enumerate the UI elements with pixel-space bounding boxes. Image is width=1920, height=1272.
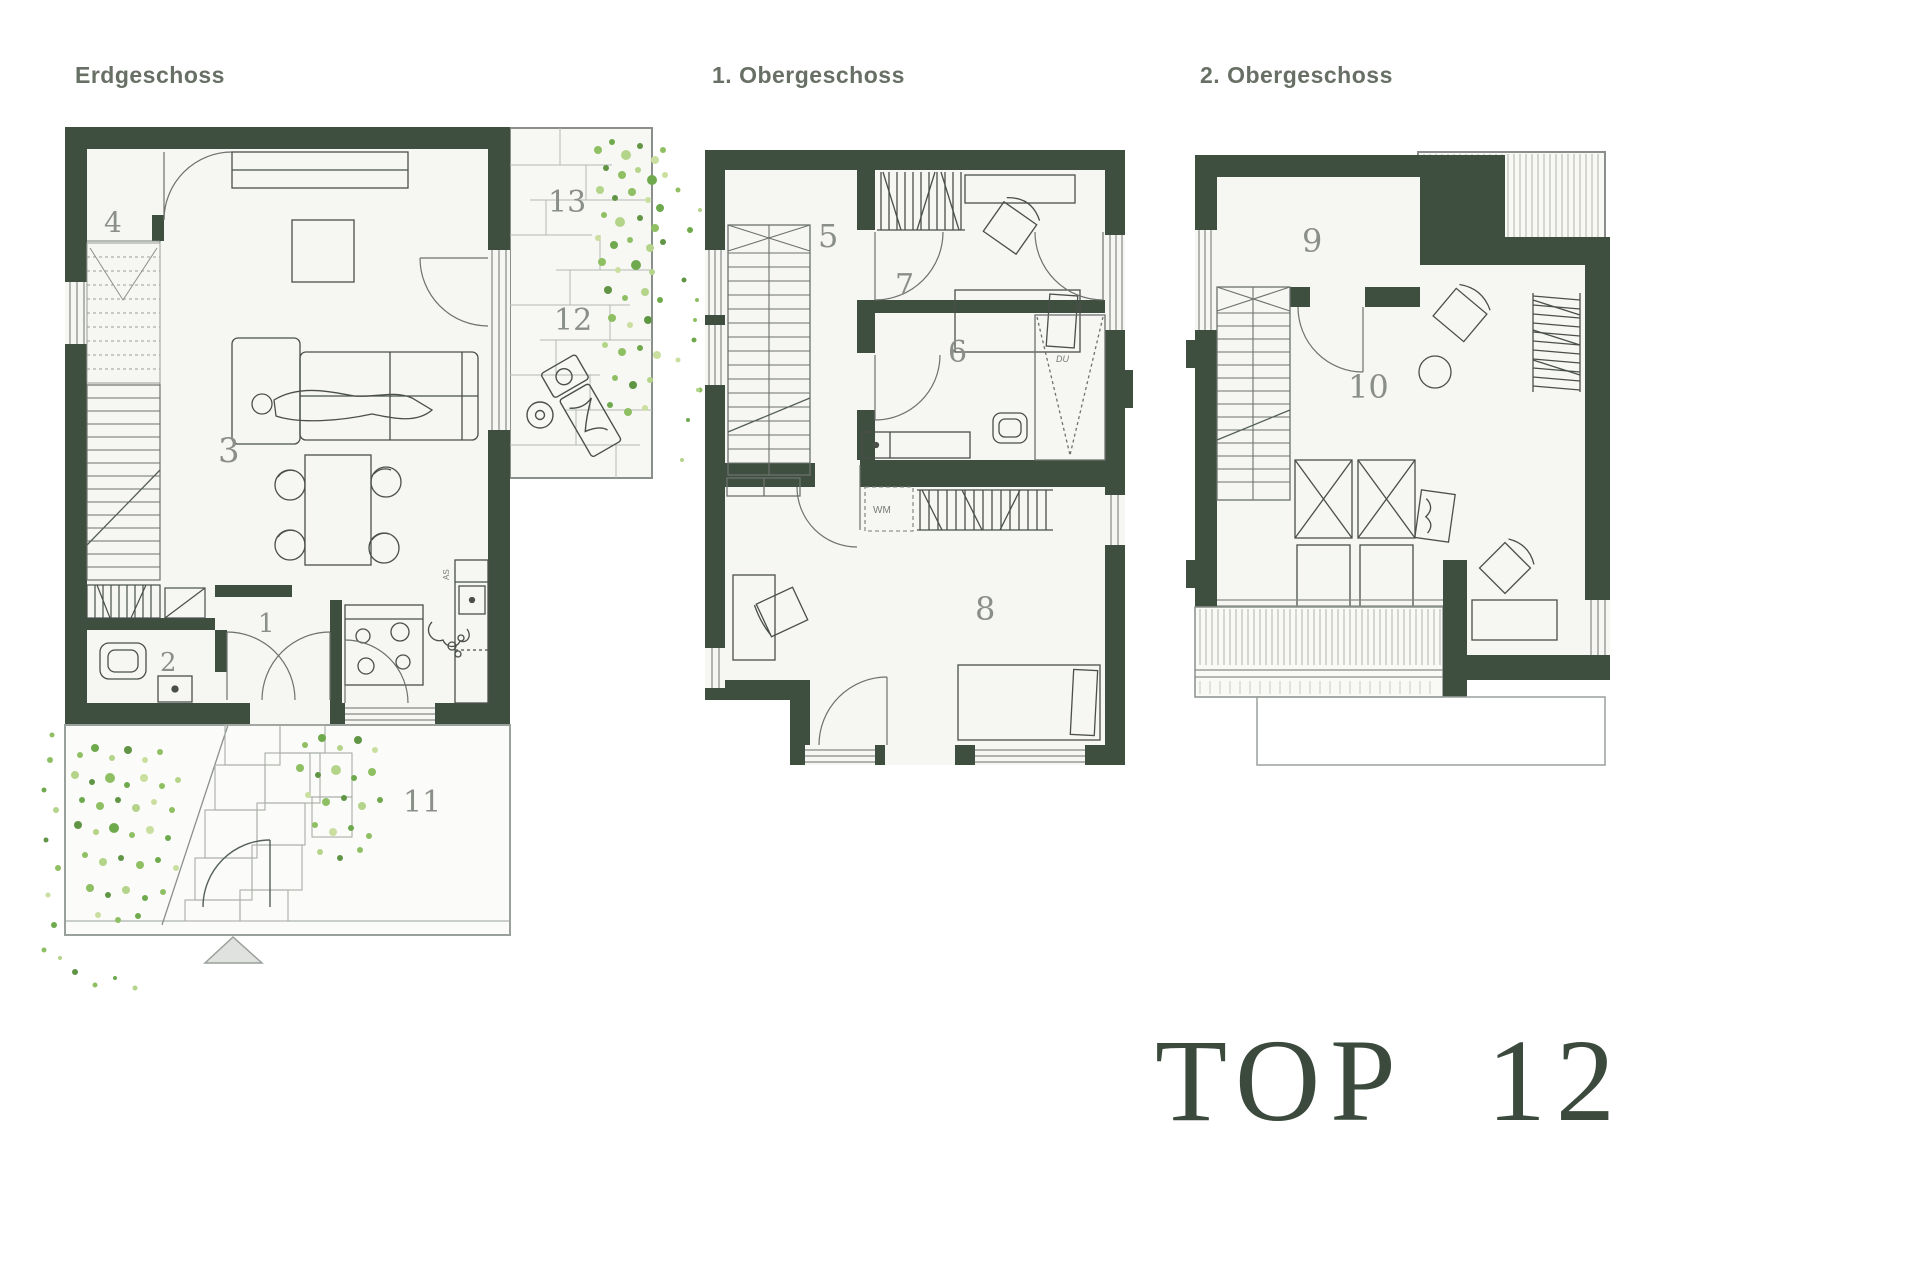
plan-title-erdgeschoss: Erdgeschoss — [75, 62, 225, 89]
room-number-6: 6 — [948, 335, 967, 370]
room-number-1: 1 — [258, 609, 275, 639]
plan-title-obergeschoss-1: 1. Obergeschoss — [712, 62, 905, 89]
shower-du-label: DU — [1056, 354, 1069, 364]
room-number-11: 11 — [403, 785, 441, 820]
floorplan-obergeschoss-2: 9 — [1150, 120, 1670, 820]
room-number-2: 2 — [160, 648, 177, 678]
kitchen-as-label: AS — [442, 569, 451, 580]
room-number-5: 5 — [818, 217, 838, 255]
floorplan-obergeschoss-1: 5 — [690, 120, 1150, 820]
room-number-8: 8 — [975, 590, 995, 628]
unit-label: TOP 12 — [1155, 1022, 1625, 1140]
vegetation-hint — [692, 298, 701, 392]
balcony-pillar — [1443, 560, 1467, 697]
washing-machine-label: WM — [873, 505, 891, 516]
floorplan-sheet: Erdgeschoss 1. Obergeschoss 2. Obergesch… — [0, 0, 1920, 1272]
room-number-13: 13 — [548, 185, 586, 220]
room-number-9: 9 — [1302, 222, 1322, 260]
plan-title-obergeschoss-2: 2. Obergeschoss — [1200, 62, 1393, 89]
garden: 11 — [65, 725, 510, 963]
room-number-12: 12 — [554, 303, 592, 338]
room-number-10: 10 — [1348, 368, 1389, 406]
room-number-4: 4 — [104, 206, 122, 239]
roof-outline — [1257, 697, 1605, 765]
floorplan-erdgeschoss: 13 12 — [40, 120, 720, 1000]
terrace: 13 12 — [510, 128, 652, 478]
building-walls — [65, 127, 510, 725]
room-number-3: 3 — [218, 431, 240, 471]
entrance-marker-triangle — [205, 937, 262, 963]
room-number-7: 7 — [895, 268, 914, 303]
